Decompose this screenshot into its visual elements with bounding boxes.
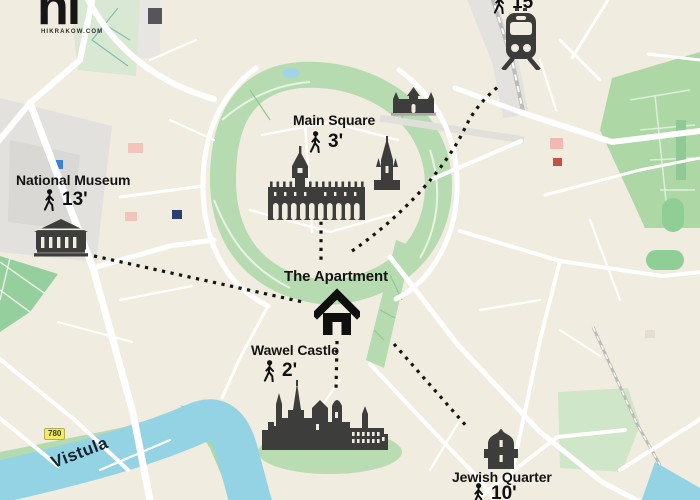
synagogue-icon: [484, 427, 518, 469]
walktime-main-square: 3': [308, 131, 343, 153]
route-number-badge: 780: [44, 428, 65, 440]
walking-person-icon: [308, 131, 322, 153]
castle-icon: [260, 380, 390, 450]
cloth-hall-icon: [268, 146, 365, 220]
brand-site-url[interactable]: HIKRAKOW.COM: [41, 29, 103, 35]
train-icon: [498, 8, 546, 70]
walking-person-icon: [262, 360, 276, 382]
walktime-value: 3': [328, 131, 343, 153]
walktime-train-station: 15': [492, 0, 538, 14]
walktime-jewish-quarter: 10': [471, 483, 517, 500]
label-the-apartment: The Apartment: [281, 268, 391, 285]
walktime-value: 10': [491, 483, 517, 500]
walking-person-icon: [492, 0, 506, 14]
house-icon: [314, 288, 360, 336]
label-national-museum: National Museum: [16, 172, 130, 188]
walktime-national-museum: 13': [42, 189, 88, 211]
museum-icon: [34, 219, 88, 257]
walktime-value: 15': [512, 0, 538, 14]
walktime-wawel-castle: 2': [262, 360, 297, 382]
walking-person-icon: [42, 189, 56, 211]
walktime-value: 13': [62, 189, 88, 211]
city-gate-icon: [391, 87, 436, 116]
label-main-square: Main Square: [293, 112, 375, 128]
label-wawel-castle: Wawel Castle: [251, 342, 339, 358]
krakow-walking-map: hi HIKRAKOW.COM National Museum 13' Main…: [0, 0, 700, 500]
walktime-value: 2': [282, 360, 297, 382]
st-marys-tower-icon: [372, 136, 402, 190]
walking-person-icon: [471, 483, 485, 500]
